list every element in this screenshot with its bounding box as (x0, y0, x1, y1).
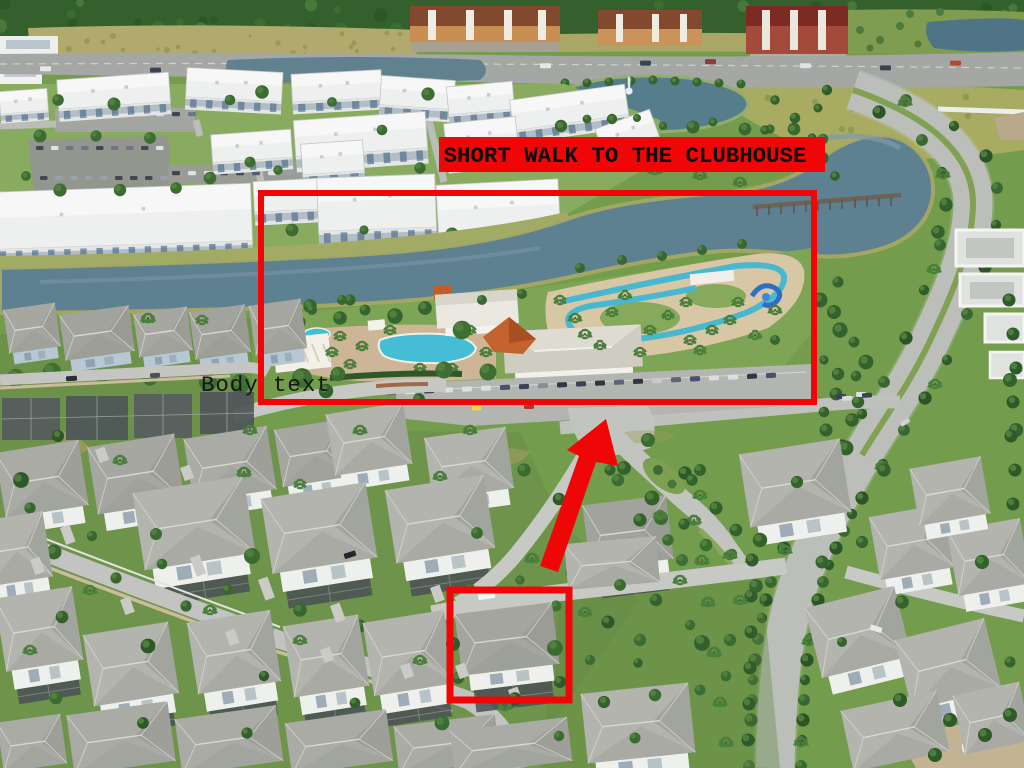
svg-text:Body text: Body text (201, 372, 331, 398)
svg-text:SHORT WALK TO THE CLUBHOUSE: SHORT WALK TO THE CLUBHOUSE (444, 143, 807, 169)
